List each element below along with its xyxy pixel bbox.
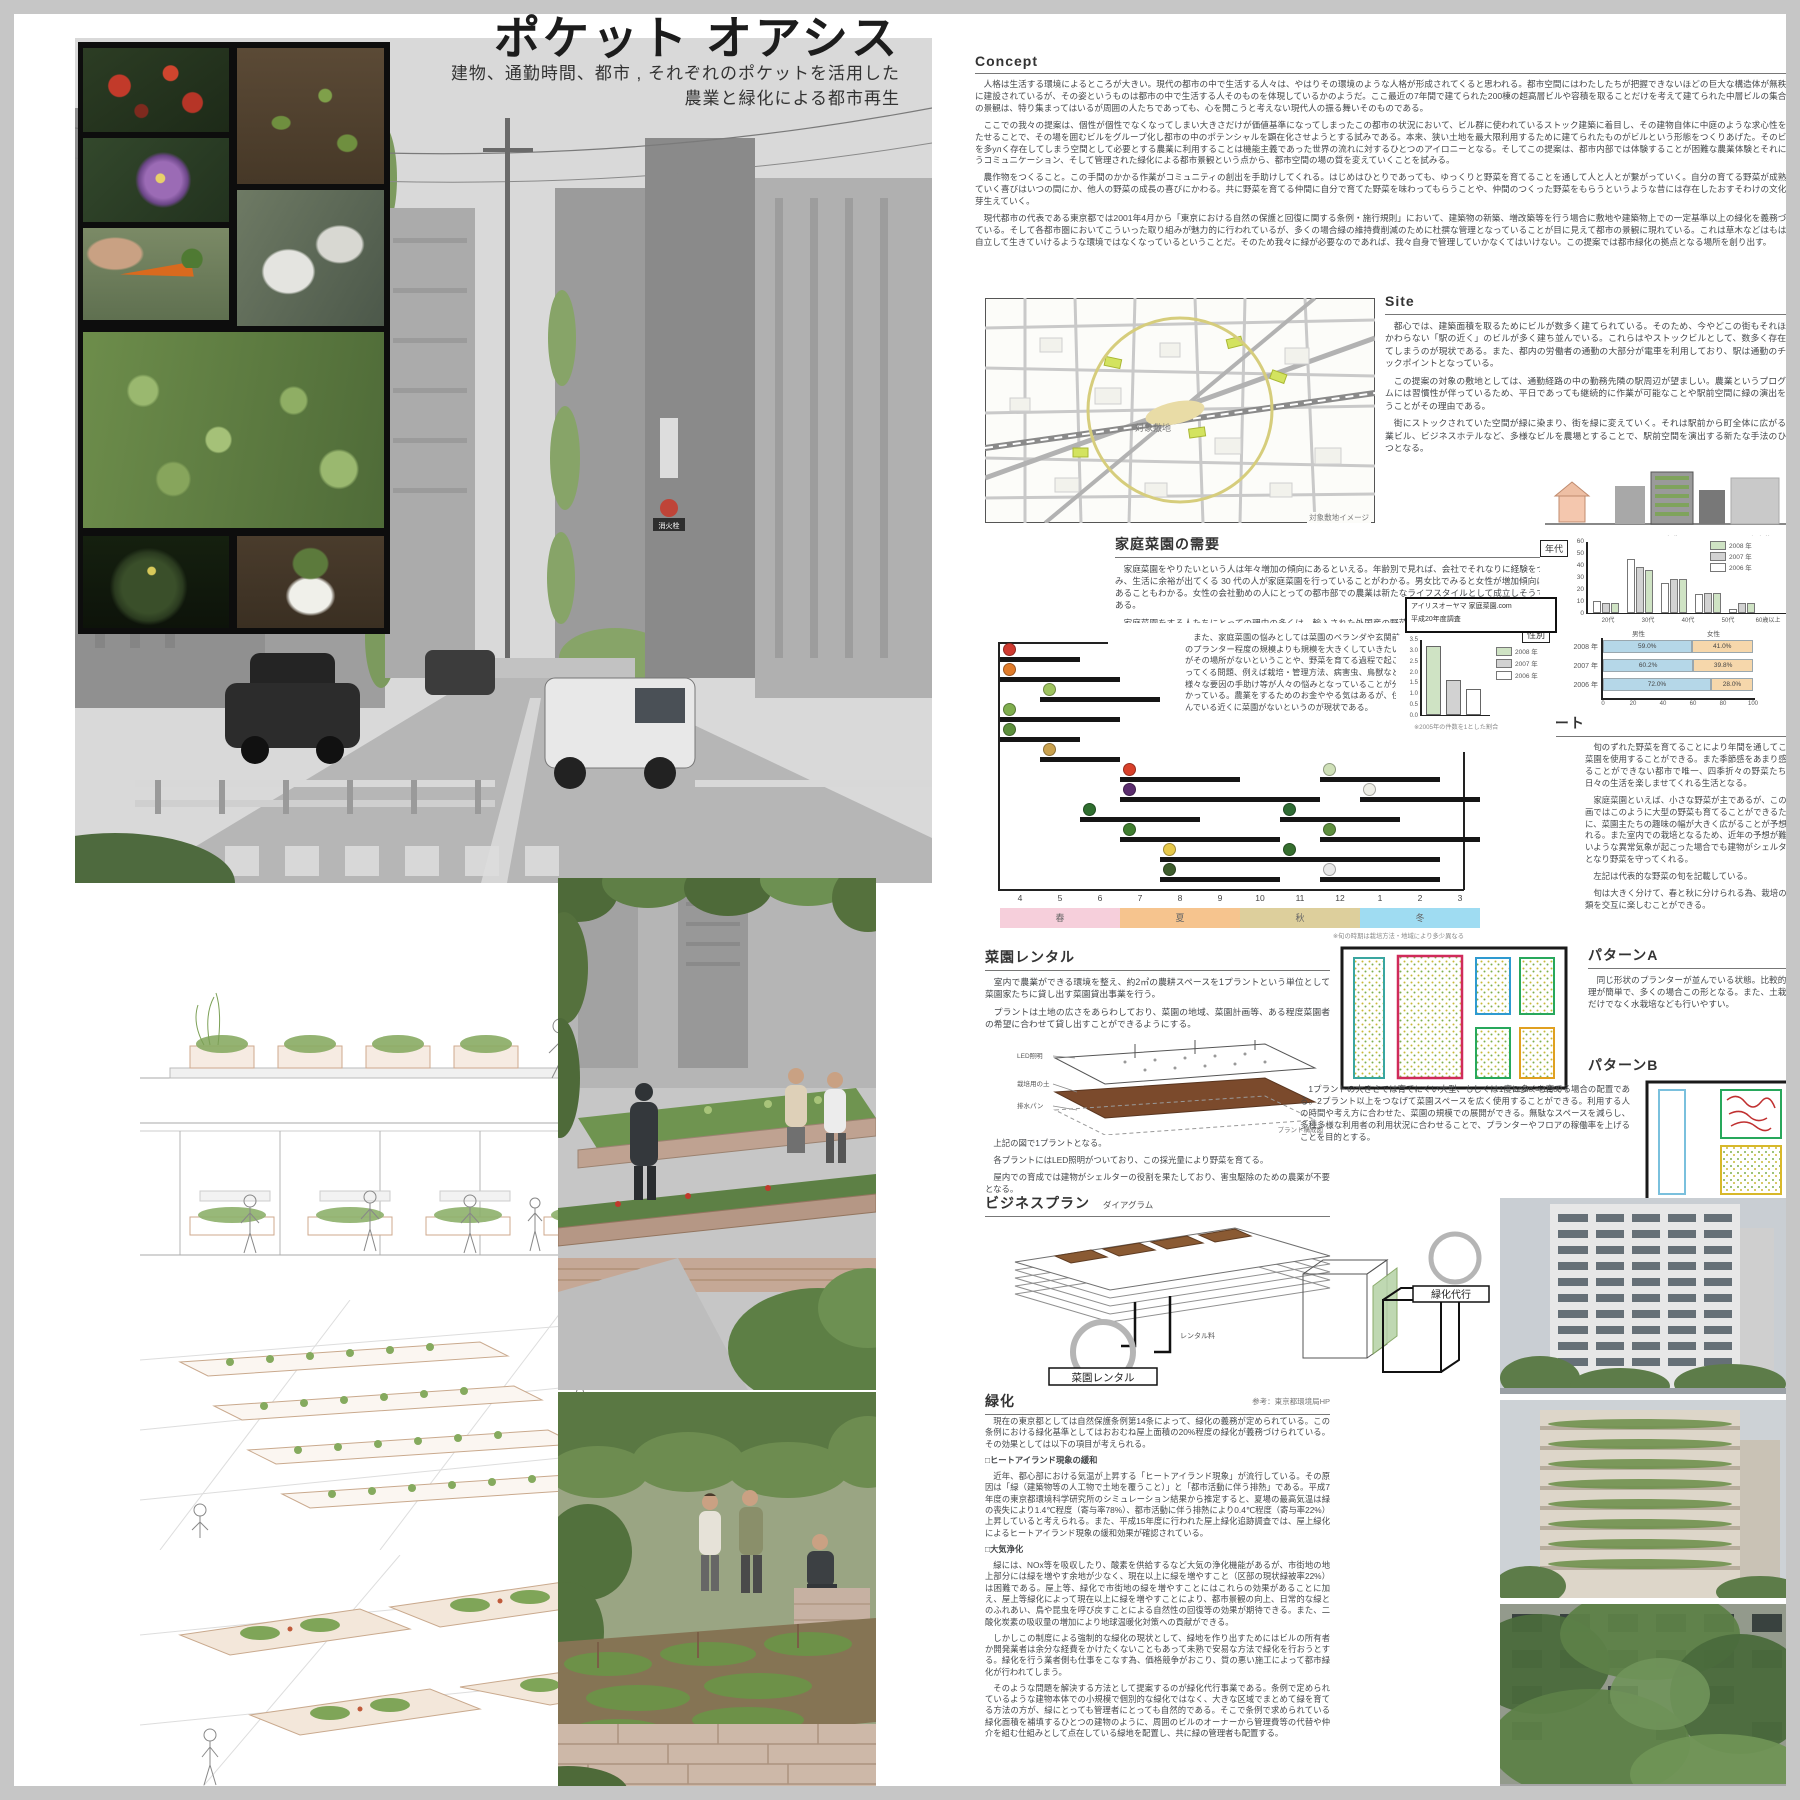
gender-chart: 性別 男性女性2008 年59.0%41.0%2007 年60.2%39.8%2… bbox=[1560, 626, 1798, 714]
greening-paragraph: しかしこの制度による強制的な緑化の現状として、緑地を作り出すためにはビルの所有者… bbox=[985, 1633, 1330, 1678]
harvest-period-bar bbox=[1000, 657, 1080, 662]
vegetable-icon bbox=[1283, 803, 1296, 816]
gender-row-track: 59.0%41.0% bbox=[1603, 640, 1753, 653]
harvest-period-bar bbox=[1160, 877, 1280, 882]
gender-x-tick-label: 80 bbox=[1716, 701, 1730, 707]
poster-subtitle-2: 農業と緑化による都市再生 bbox=[400, 87, 900, 112]
age-chart: 年代 010203040506020代30代40代50代60歳以上2008 年2… bbox=[1540, 536, 1796, 632]
gender-bar-segment: 41.0% bbox=[1692, 640, 1754, 653]
seedling-photo bbox=[237, 48, 384, 184]
age-bar bbox=[1738, 603, 1746, 613]
harvest-period-bar bbox=[1000, 717, 1120, 722]
green-building-photo-2 bbox=[1500, 1400, 1795, 1598]
greening-paragraph: そのような問題を解決する方法として提案するのが緑化代行事業である。条例で定められ… bbox=[985, 1683, 1330, 1739]
pattern-a-text: 同じ形状のプランターが並んでいる状態。比較的管理が簡単で、多くの場合この形となる… bbox=[1588, 974, 1795, 1011]
pattern-b-heading-row: パターンB bbox=[1588, 1056, 1795, 1078]
greening-subheading: □ヒートアイランド現象の緩和 bbox=[985, 1455, 1330, 1466]
harvest-month-label: 10 bbox=[1240, 893, 1280, 903]
growth-y-tick-label: 2.5 bbox=[1398, 659, 1418, 665]
age-group bbox=[1729, 603, 1755, 613]
legend-label: 2007 年 bbox=[1729, 551, 1752, 561]
vegetable-icon bbox=[1323, 763, 1336, 776]
plant-diagram-label-led: LED照明 bbox=[1017, 1052, 1043, 1060]
rental-paragraph: プラントは土地の広さをあらわしており、菜園の地域、菜園計画等、ある程度菜園者の希… bbox=[985, 1006, 1330, 1031]
daikon-photo bbox=[237, 536, 384, 628]
harvest-axis-top bbox=[998, 642, 1108, 644]
vegetable-field-photo bbox=[83, 332, 384, 528]
legend-swatch bbox=[1710, 552, 1726, 561]
gender-bar-segment: 60.2% bbox=[1603, 659, 1693, 672]
age-x-label: 20代 bbox=[1588, 615, 1628, 624]
harvest-paragraph: 旬のずれた野菜を育てることにより年間を通してこの菜園を使用することができる。また… bbox=[1585, 742, 1795, 790]
age-bar bbox=[1602, 603, 1610, 613]
vegetable-icon bbox=[1163, 843, 1176, 856]
legend-item: 2008 年 bbox=[1710, 540, 1752, 550]
harvest-section-text: 旬のずれた野菜を育てることにより年間を通してこの菜園を使用することができる。また… bbox=[1585, 742, 1795, 947]
age-bar bbox=[1627, 559, 1635, 613]
harvest-month-label: 4 bbox=[1000, 893, 1040, 903]
age-group bbox=[1695, 593, 1721, 613]
vegetable-icon bbox=[1003, 643, 1016, 656]
vegetable-icon bbox=[1363, 783, 1376, 796]
rental-section-2: 上記の図で1プラントとなる。 各プラントにはLED照明がついており、この採光量に… bbox=[985, 1138, 1330, 1194]
vegetable-icon bbox=[1283, 843, 1296, 856]
growth-y-tick-label: 0.0 bbox=[1398, 713, 1418, 719]
harvest-season-band: 秋 bbox=[1240, 908, 1360, 928]
poster-root: 消火栓 bbox=[0, 0, 1800, 1800]
legend-swatch bbox=[1710, 563, 1726, 572]
gender-x-tick-label: 60 bbox=[1686, 701, 1700, 707]
age-legend: 2008 年2007 年2006 年 bbox=[1708, 538, 1754, 574]
harvest-paragraph: 旬は大きく分けて、春と秋に分けられる為、栽培の種類を交互に楽しむことができる。 bbox=[1585, 888, 1795, 912]
site-paragraph: 都心では、建築面積を取るためにビルが数多く建てられている。そのため、今やどこの街… bbox=[1385, 320, 1795, 370]
legend-item: 2008 年 bbox=[1496, 646, 1538, 656]
age-bar bbox=[1695, 594, 1703, 613]
site-map-caption: 対象敷地イメージ bbox=[1307, 512, 1371, 523]
chart-source-line1: アイリスオーヤマ 家庭菜園.com bbox=[1411, 601, 1551, 611]
vegetable-icon bbox=[1323, 823, 1336, 836]
harvest-month-label: 7 bbox=[1120, 893, 1160, 903]
growth-y-tick-label: 0.5 bbox=[1398, 702, 1418, 708]
poster-title: ポケット オアシス bbox=[400, 14, 900, 62]
photo-collage bbox=[78, 42, 390, 634]
title-block: ポケット オアシス 建物、通勤時間、都市 , それぞれのポケットを活用した 農業… bbox=[400, 14, 900, 112]
vegetable-icon bbox=[1003, 663, 1016, 676]
greening-paragraph: 近年、都心部における気温が上昇する「ヒートアイランド現象」が流行している。その原… bbox=[985, 1471, 1330, 1539]
age-y-tick-label: 20 bbox=[1564, 586, 1584, 593]
age-y-tick-label: 10 bbox=[1564, 598, 1584, 605]
harvest-month-label: 2 bbox=[1400, 893, 1440, 903]
business-fee-label: レンタル料 bbox=[1180, 1331, 1215, 1340]
gender-x-tick-label: 100 bbox=[1746, 701, 1760, 707]
legend-item: 2006 年 bbox=[1710, 562, 1752, 572]
growth-bar bbox=[1466, 689, 1481, 715]
carrot-leaves-icon bbox=[179, 246, 205, 268]
concept-paragraph: ここでの我々の提案は、個性が個性でなくなってしまい大きさだけが価値基準になってし… bbox=[975, 120, 1795, 167]
gender-x-tick-label: 20 bbox=[1626, 701, 1640, 707]
pattern-b-text: 1プラントの大きさでは育てにくい大型、もしくは1度に多くを育てる場合の配置である… bbox=[1300, 1084, 1630, 1144]
business-rental-label: 菜園レンタル bbox=[1072, 1372, 1135, 1384]
harvest-month-label: 9 bbox=[1200, 893, 1240, 903]
age-y-tick-label: 30 bbox=[1564, 574, 1584, 581]
age-bar bbox=[1747, 603, 1755, 613]
legend-label: 2006 年 bbox=[1729, 562, 1752, 572]
site-paragraph: 街にストックされていた空間が緑に染まり、街を緑に変えていく。それは駅前から町全体… bbox=[1385, 417, 1795, 454]
legend-label: 2007 年 bbox=[1515, 658, 1538, 668]
legend-swatch bbox=[1496, 671, 1512, 680]
age-bar bbox=[1645, 570, 1653, 613]
rooftop-render-1 bbox=[558, 878, 876, 1390]
age-x-label: 40代 bbox=[1668, 615, 1708, 624]
age-bar bbox=[1729, 609, 1737, 613]
concept-heading: Concept bbox=[975, 52, 1795, 74]
greening-section: 現在の東京都としては自然保護条例第14条によって、緑化の義務が定められている。こ… bbox=[985, 1416, 1330, 1788]
age-group bbox=[1661, 579, 1687, 613]
business-diagram: レンタル料 菜園レンタル 緑化代行 bbox=[985, 1216, 1495, 1388]
concept-paragraph: 現代都市の代表である東京都では2001年4月から「東京における自然の保護と回復に… bbox=[975, 213, 1795, 249]
harvest-month-label: 3 bbox=[1440, 893, 1480, 903]
legend-label: 2008 年 bbox=[1729, 540, 1752, 550]
age-x-label: 50代 bbox=[1708, 615, 1748, 624]
age-bar bbox=[1670, 579, 1678, 613]
gender-column-header: 女性 bbox=[1707, 628, 1720, 638]
greening-subheading: □大気浄化 bbox=[985, 1544, 1330, 1555]
harvest-paragraph: 左記は代表的な野菜の旬を記載している。 bbox=[1585, 871, 1795, 883]
green-building-photo-1 bbox=[1500, 1198, 1795, 1394]
legend-item: 2006 年 bbox=[1496, 670, 1538, 680]
harvest-period-bar bbox=[1040, 697, 1160, 702]
concept-section: Concept 人格は生活する環境によるところが大きい。現代の都市の中で生活する… bbox=[975, 52, 1795, 292]
site-map-label: 対象敷地 bbox=[1135, 422, 1171, 433]
legend-swatch bbox=[1496, 659, 1512, 668]
harvest-period-bar bbox=[1080, 817, 1200, 822]
demand-paragraph: また、家庭菜園の悩みとしては菜園のベランダや玄関前のプランター程度の規模よりも規… bbox=[1185, 632, 1400, 713]
plant-diagram-label-drain: 排水パン bbox=[1017, 1101, 1043, 1110]
gender-bar-segment: 39.8% bbox=[1693, 659, 1753, 672]
flower-photo bbox=[83, 138, 229, 222]
business-subheading: ダイアグラム bbox=[1103, 1200, 1153, 1210]
strawberry-photo bbox=[83, 48, 229, 132]
gender-bar-segment: 28.0% bbox=[1711, 678, 1753, 691]
legend-item: 2007 年 bbox=[1496, 658, 1538, 668]
age-bar bbox=[1713, 593, 1721, 613]
gender-x-tick-label: 0 bbox=[1596, 701, 1610, 707]
chart-source-line2: 平成20年度調査 bbox=[1411, 614, 1551, 624]
harvest-paragraph: 家庭菜園といえば、小さな野菜が主であるが、この計画ではこのように大型の野菜も育て… bbox=[1585, 795, 1795, 867]
vegetable-icon bbox=[1003, 703, 1016, 716]
harvest-period-bar bbox=[1120, 797, 1320, 802]
harvest-season-band: 春 bbox=[1000, 908, 1120, 928]
age-bar bbox=[1679, 579, 1687, 613]
growth-caption: ※2005年の件数を1とした割合 bbox=[1414, 722, 1594, 731]
pattern-b-section: 1プラントの大きさでは育てにくい大型、もしくは1度に多くを育てる場合の配置である… bbox=[1300, 1084, 1630, 1206]
harvest-period-bar bbox=[1160, 857, 1280, 862]
business-heading: ビジネスプラン ダイアグラム bbox=[985, 1194, 1330, 1217]
rental-paragraph: 上記の図で1プラントとなる。 bbox=[985, 1138, 1330, 1150]
site-paragraph: この提案の対象の敷地としては、通勤経路の中の勤務先隣の駅周辺が望ましい。農業とい… bbox=[1385, 375, 1795, 412]
vegetable-icon bbox=[1123, 763, 1136, 776]
harvest-period-bar bbox=[1120, 777, 1240, 782]
legend-label: 2008 年 bbox=[1515, 646, 1538, 656]
gender-row-track: 60.2%39.8% bbox=[1603, 659, 1753, 672]
legend-swatch bbox=[1710, 541, 1726, 550]
harvest-month-label: 12 bbox=[1320, 893, 1360, 903]
harvest-period-bar bbox=[1320, 837, 1480, 842]
vegetable-icon bbox=[1043, 743, 1056, 756]
age-x-label: 60歳以上 bbox=[1748, 615, 1788, 624]
pattern-a-heading: パターンA bbox=[1588, 946, 1795, 969]
gender-row-label: 2008 年 bbox=[1560, 642, 1598, 652]
street-sign-label: 消火栓 bbox=[659, 521, 680, 530]
concept-paragraph: 人格は生活する環境によるところが大きい。現代の都市の中で生活する人々は、やはりそ… bbox=[975, 79, 1795, 115]
growth-y-tick-label: 1.0 bbox=[1398, 691, 1418, 697]
rental-paragraph: 屋内での育成では建物がシェルターの役割を果たしており、害虫駆除のための農薬が不要… bbox=[985, 1172, 1330, 1194]
gender-x-axis bbox=[1601, 698, 1755, 700]
harvest-period-bar bbox=[1360, 797, 1480, 802]
site-illustration bbox=[1545, 462, 1795, 532]
legend-item: 2007 年 bbox=[1710, 551, 1752, 561]
harvest-note: ※旬の時期は栽培方法・地域により多少異なる bbox=[1245, 931, 1464, 940]
harvest-period-bar bbox=[1000, 737, 1080, 742]
gender-column-header: 男性 bbox=[1632, 628, 1645, 638]
growth-chart: 0.00.51.01.52.02.53.03.52008 年2007 年2006… bbox=[1396, 636, 1556, 752]
age-y-tick-label: 0 bbox=[1564, 610, 1584, 617]
greening-paragraph: 緑には、NOx等を吸収したり、酸素を供給するなど大気の浄化機能があるが、市街地の… bbox=[985, 1560, 1330, 1628]
greening-ref: 参考：東京都環境局HP bbox=[1180, 1396, 1330, 1407]
growth-y-tick-label: 3.5 bbox=[1398, 637, 1418, 643]
age-group bbox=[1627, 559, 1653, 613]
age-bar bbox=[1636, 567, 1644, 613]
plant-diagram-label-soil: 栽培用の土 bbox=[1017, 1079, 1050, 1088]
rooftop-render-2 bbox=[558, 1392, 876, 1800]
harvest-axis-bottom bbox=[998, 889, 1464, 891]
business-heading-row: ビジネスプラン ダイアグラム bbox=[985, 1194, 1330, 1216]
growth-y-tick-label: 2.0 bbox=[1398, 670, 1418, 676]
pattern-b-heading: パターンB bbox=[1588, 1056, 1795, 1078]
business-heading-text: ビジネスプラン bbox=[985, 1195, 1090, 1211]
rental-section: 菜園レンタル 室内で農業ができる環境を整え、約2㎡の農耕スペースを1プラントとい… bbox=[985, 948, 1330, 1038]
growth-bar bbox=[1426, 646, 1441, 715]
age-y-tick-label: 40 bbox=[1564, 562, 1584, 569]
growth-y-tick-label: 3.0 bbox=[1398, 648, 1418, 654]
growth-y-tick-label: 1.5 bbox=[1398, 680, 1418, 686]
growth-legend: 2008 年2007 年2006 年 bbox=[1496, 644, 1538, 682]
age-group bbox=[1593, 601, 1619, 613]
demand-heading: 家庭菜園の需要 bbox=[1115, 535, 1545, 558]
gender-row-track: 72.0%28.0% bbox=[1603, 678, 1753, 691]
legend-swatch bbox=[1496, 647, 1512, 656]
vegetable-icon bbox=[1163, 863, 1176, 876]
pumpkin-photo bbox=[83, 536, 229, 628]
age-bar bbox=[1593, 601, 1601, 613]
age-bar bbox=[1611, 603, 1619, 613]
green-building-photo-3 bbox=[1500, 1604, 1795, 1796]
harvest-month-label: 1 bbox=[1360, 893, 1400, 903]
harvest-month-label: 6 bbox=[1080, 893, 1120, 903]
age-bar bbox=[1661, 583, 1669, 613]
concept-paragraph: 農作物をつくること。この手間のかかる作業がコミュニティの創出を手助けしてくれる。… bbox=[975, 172, 1795, 208]
harvest-month-label: 5 bbox=[1040, 893, 1080, 903]
vegetable-icon bbox=[1083, 803, 1096, 816]
gender-row-label: 2007 年 bbox=[1560, 661, 1598, 671]
greening-paragraph: 現在の東京都としては自然保護条例第14条によって、緑化の義務が定められている。こ… bbox=[985, 1416, 1330, 1450]
rental-paragraph: 室内で農業ができる環境を整え、約2㎡の農耕スペースを1プラントという単位として菜… bbox=[985, 976, 1330, 1001]
age-bar bbox=[1704, 593, 1712, 613]
harvest-period-bar bbox=[1120, 837, 1280, 842]
harvest-month-label: 8 bbox=[1160, 893, 1200, 903]
growth-bar bbox=[1446, 680, 1461, 715]
age-x-label: 30代 bbox=[1628, 615, 1668, 624]
age-chart-label: 年代 bbox=[1540, 540, 1568, 557]
legend-label: 2006 年 bbox=[1515, 670, 1538, 680]
vegetable-icon bbox=[1123, 823, 1136, 836]
growth-plot bbox=[1422, 640, 1490, 716]
harvest-bag-photo bbox=[237, 190, 384, 326]
vegetable-icon bbox=[1323, 863, 1336, 876]
gender-bar-segment: 59.0% bbox=[1603, 640, 1692, 653]
gender-row-label: 2006 年 bbox=[1560, 680, 1598, 690]
age-plot bbox=[1588, 542, 1793, 614]
demand-note: また、家庭菜園の悩みとしては菜園のベランダや玄関前のプランター程度の規模よりも規… bbox=[1185, 632, 1400, 718]
rental-paragraph: 各プラントにはLED照明がついており、この採光量により野菜を育てる。 bbox=[985, 1155, 1330, 1167]
harvest-period-bar bbox=[1320, 877, 1440, 882]
site-map: 対象敷地 対象敷地イメージ bbox=[985, 298, 1375, 523]
plant-unit-diagram: LED照明 栽培用の土 排水パン プラント構成図 bbox=[1015, 1040, 1325, 1135]
harvest-period-bar bbox=[1280, 817, 1400, 822]
harvest-period-bar bbox=[1040, 757, 1120, 762]
vegetable-icon bbox=[1123, 783, 1136, 796]
harvest-period-bar bbox=[1320, 777, 1440, 782]
harvest-month-label: 11 bbox=[1280, 893, 1320, 903]
pattern-a-plan: Scale = 1/200 bbox=[1340, 946, 1568, 1094]
vegetable-icon bbox=[1043, 683, 1056, 696]
site-heading: Site bbox=[1385, 292, 1795, 315]
site-section: Site 都心では、建築面積を取るためにビルが数多く建てられている。そのため、今… bbox=[1385, 292, 1795, 464]
gender-x-tick-label: 40 bbox=[1656, 701, 1670, 707]
rental-heading: 菜園レンタル bbox=[985, 948, 1330, 971]
carrot-photo bbox=[83, 228, 229, 320]
harvest-season-band: 夏 bbox=[1120, 908, 1240, 928]
pattern-a-section: パターンA 同じ形状のプランターが並んでいる状態。比較的管理が簡単で、多くの場合… bbox=[1588, 946, 1795, 1054]
vegetable-icon bbox=[1003, 723, 1016, 736]
gender-bar-segment: 72.0% bbox=[1603, 678, 1711, 691]
harvest-period-bar bbox=[1280, 857, 1440, 862]
poster-subtitle-1: 建物、通勤時間、都市 , それぞれのポケットを活用した bbox=[400, 62, 900, 87]
harvest-season-band: 冬 bbox=[1360, 908, 1480, 928]
business-green-label: 緑化代行 bbox=[1431, 1288, 1471, 1301]
harvest-period-bar bbox=[1000, 677, 1120, 682]
chart-source-box: アイリスオーヤマ 家庭菜園.com 平成20年度調査 bbox=[1405, 597, 1557, 633]
